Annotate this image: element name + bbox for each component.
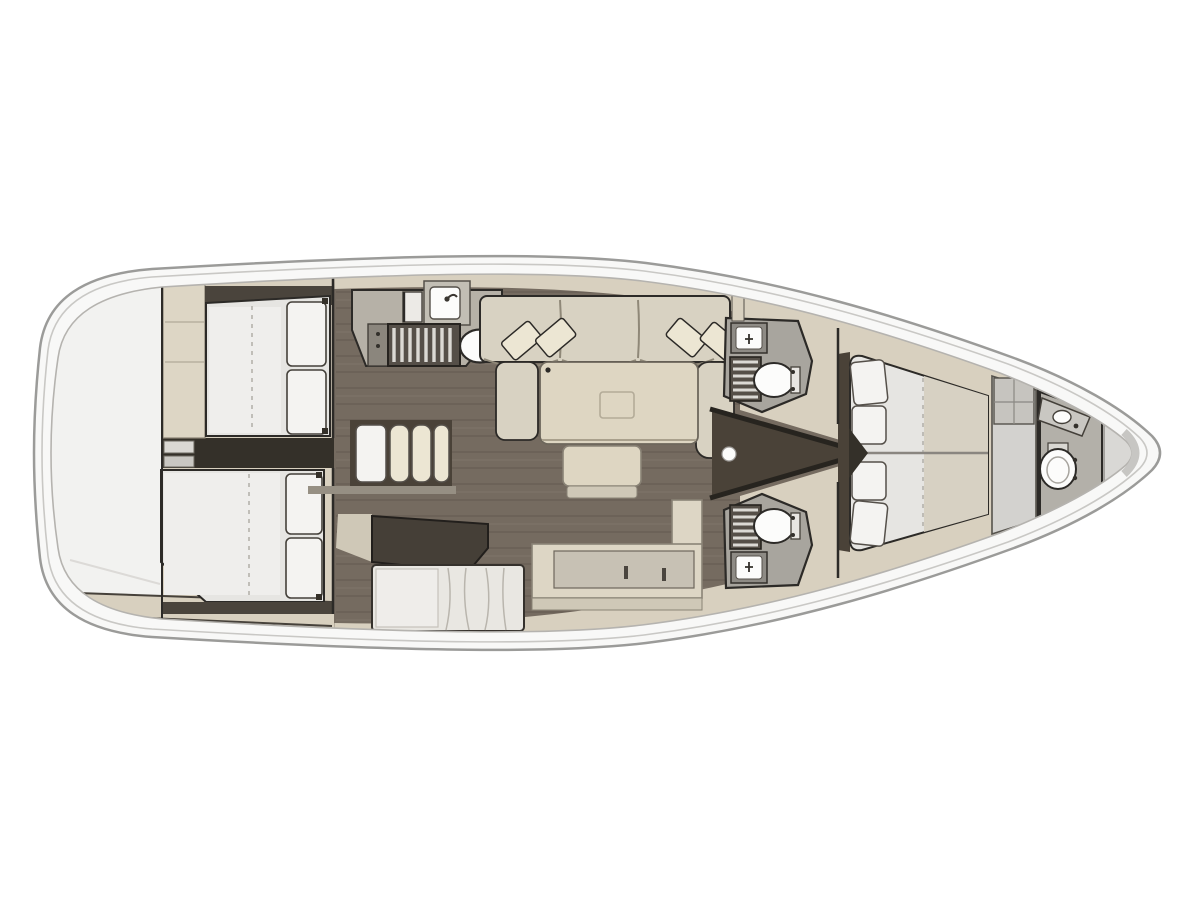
wardrobe-forward xyxy=(992,376,1036,534)
aft-cabin-port xyxy=(163,276,332,438)
bed-pillow xyxy=(287,370,326,434)
salon-table xyxy=(540,362,698,444)
toilet xyxy=(754,509,800,543)
nav-seat xyxy=(372,565,524,631)
bed-pillow xyxy=(852,406,886,444)
yacht-floorplan-image xyxy=(0,0,1201,900)
floorplan-svg xyxy=(0,0,1201,900)
stove xyxy=(368,324,460,366)
bed-pillow xyxy=(852,462,886,500)
bed-pillow xyxy=(286,474,322,534)
head-port xyxy=(724,318,812,412)
bed-pillow xyxy=(286,538,322,598)
bed-pillow xyxy=(850,500,888,546)
wardrobe xyxy=(163,276,205,438)
salon-bench xyxy=(563,446,641,498)
handle xyxy=(662,568,666,581)
handle xyxy=(624,566,628,579)
cabin-wall-band xyxy=(161,602,332,614)
mattress-left xyxy=(209,307,281,433)
head-sink xyxy=(731,323,767,353)
corridor-step xyxy=(164,456,194,467)
corridor-step xyxy=(164,441,194,453)
fridge xyxy=(403,292,422,322)
floor-fitting xyxy=(722,447,736,461)
bed-pillow xyxy=(287,302,326,366)
galley-sink xyxy=(424,281,470,325)
aft-cabin-starboard xyxy=(161,470,332,614)
chart-table xyxy=(372,516,488,572)
bed-pillow xyxy=(850,359,888,405)
head-starboard xyxy=(724,494,812,588)
aft-corridor xyxy=(162,438,334,468)
head-sink xyxy=(731,552,767,583)
toilet xyxy=(754,363,800,397)
cabin-floor-edge xyxy=(838,352,850,552)
mattress-left xyxy=(164,473,280,595)
sofa-seat-left xyxy=(496,362,538,440)
settee-shelf xyxy=(308,486,456,494)
